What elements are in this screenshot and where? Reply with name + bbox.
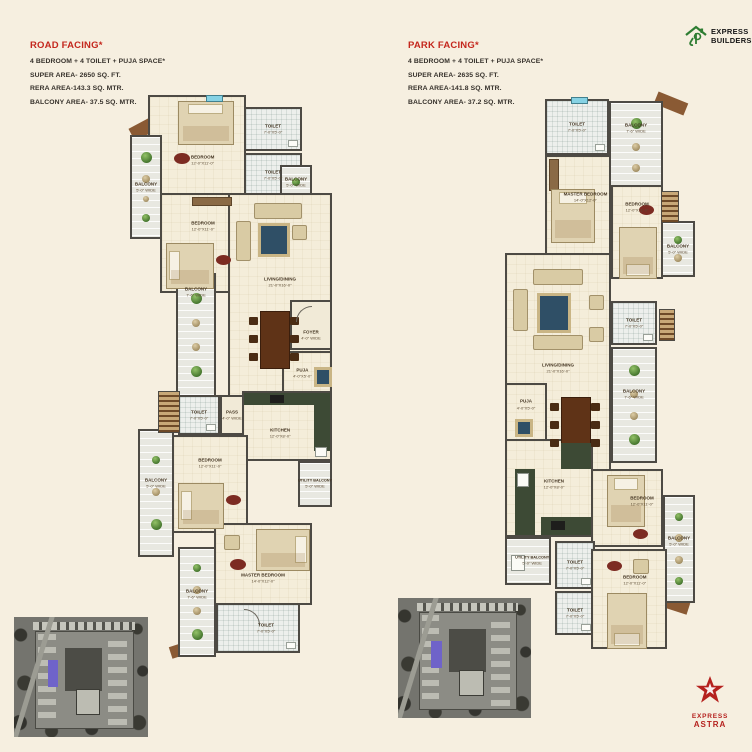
builders-logo-line1: EXPRESS — [711, 27, 752, 36]
washing-machine — [511, 555, 525, 571]
plant-icon — [151, 519, 162, 530]
plant-icon — [191, 293, 202, 304]
armchair — [589, 295, 604, 310]
plant-icon — [152, 456, 160, 464]
room-name: TOILET — [626, 317, 642, 323]
room-name: UTILITY BALCONY — [298, 479, 332, 484]
room-name: TOILET — [258, 622, 274, 628]
wardrobe — [192, 197, 232, 206]
planter-icon — [193, 607, 201, 615]
bedroom: BEDROOM12'-0"X11'-0" — [591, 469, 663, 547]
room-dims: 7'-0"X5'-0" — [566, 613, 585, 618]
chair — [290, 335, 299, 343]
center-table — [537, 293, 571, 333]
kitchen-counter — [561, 443, 591, 469]
bed — [607, 475, 645, 527]
planter-icon — [193, 586, 201, 594]
balcony: BALCONY7'-6" WIDE — [611, 347, 657, 463]
plant-icon — [675, 513, 683, 521]
room-dims: 7'-6" WIDE — [626, 129, 646, 134]
room-name: PUJA — [296, 367, 308, 373]
planter-icon — [143, 196, 149, 202]
room-dims: 7'-6" WIDE — [187, 594, 207, 599]
room-name: FOYER — [303, 329, 319, 335]
stove — [270, 395, 284, 403]
bed — [256, 529, 310, 571]
room-dims: 21'-0"X16'-0" — [268, 283, 291, 288]
site-clubhouse — [76, 689, 101, 715]
chair — [249, 335, 258, 343]
plant-icon — [141, 152, 152, 163]
chair — [290, 353, 299, 361]
room-dims: 7'-0"X5'-0" — [625, 323, 644, 328]
balcony: BALCONY7'-6" WIDE — [609, 101, 663, 189]
express-astra-logo: EXPRESS ASTRA — [681, 674, 739, 729]
park-facing-rera-area: RERA AREA-141.8 SQ. MTR. — [408, 85, 638, 92]
site-courtyard — [65, 648, 103, 691]
balcony: BALCONY5'-0" WIDE — [661, 221, 695, 277]
room-name: BALCONY — [667, 243, 689, 249]
planter-icon — [152, 488, 160, 496]
center-table — [258, 223, 290, 257]
kitchen-counter — [314, 405, 330, 451]
room-dims: 12'-0"X11'-0" — [192, 226, 215, 231]
planter-icon — [630, 412, 638, 420]
road-facing-config: 4 BEDROOM + 4 TOILET + PUJA SPACE* — [30, 58, 260, 65]
room-dims: 7'-0"X5'-0" — [566, 565, 585, 570]
plant-icon — [191, 366, 202, 377]
room-name: BEDROOM — [191, 220, 215, 226]
planter-icon — [632, 143, 640, 151]
bedroom: BEDROOM12'-0"X11'-0" — [148, 95, 246, 195]
plant-icon — [629, 434, 640, 445]
planter-icon — [142, 175, 150, 183]
refrigerator — [315, 447, 327, 457]
balcony: BALCONY7'-6" WIDE — [178, 547, 216, 657]
room-name: BEDROOM — [198, 458, 222, 464]
plant-icon — [629, 365, 640, 376]
toilet: TOILET7'-0"X5'-0" — [216, 603, 300, 653]
room-name: TOILET — [567, 607, 583, 613]
lift-shaft — [571, 97, 588, 104]
room-dims: 12'-0"X11'-0" — [191, 161, 214, 166]
room-name: BALCONY — [145, 477, 167, 483]
room-name: TOILET — [265, 123, 281, 129]
tower-location-highlight — [431, 641, 442, 667]
chair — [550, 403, 559, 411]
plant-icon — [192, 629, 203, 640]
sofa — [513, 289, 528, 331]
armchair — [589, 327, 604, 342]
room-name: PUJA — [520, 399, 532, 405]
room-name: KITCHEN — [544, 479, 564, 485]
site-aerial-image — [14, 617, 148, 737]
balcony: BALCONY7'-6" WIDE — [176, 273, 216, 397]
room-dims: 7'-0"X5'-0" — [190, 415, 209, 420]
site-courtyard — [449, 629, 486, 672]
rug — [226, 495, 241, 505]
park-facing-floorplan: TOILET7'-0"X5'-0" BALCONY7'-6" WIDE MAST… — [505, 97, 695, 653]
site-towers-right — [108, 634, 127, 725]
room-dims: 4'-0"X5'-0" — [293, 373, 312, 378]
plant-icon — [193, 564, 201, 572]
rug — [607, 561, 622, 571]
plant-icon — [631, 118, 642, 129]
door-arc — [296, 306, 312, 322]
bed — [619, 227, 657, 279]
armchair — [292, 225, 307, 240]
master-bedroom: MASTER BEDROOM14'-0"X12'-0" — [545, 155, 611, 255]
park-facing-super-area: SUPER AREA- 2635 SQ. FT. — [408, 72, 638, 79]
room-dims: 12'-0"X8'-0" — [544, 485, 565, 490]
road-facing-floorplan: BEDROOM12'-0"X11'-0" TOILET7'-0"X5'-0" T… — [130, 95, 332, 657]
room-dims: 12'-0"X11'-0" — [623, 580, 646, 585]
armchair — [224, 535, 240, 550]
room-name: BEDROOM — [191, 155, 215, 161]
plant-icon — [674, 236, 682, 244]
utility-balcony: UTILITY BALCONY5'-0" WIDE — [505, 537, 551, 585]
planter-icon — [675, 556, 683, 564]
passage: PASS4'-0" WIDE — [220, 395, 244, 435]
stairs — [659, 309, 675, 341]
puja-room: PUJA4'-0"X5'-0" — [505, 383, 547, 441]
rug — [174, 153, 190, 164]
sofa — [254, 203, 302, 219]
armchair — [633, 559, 649, 574]
bed — [178, 101, 234, 145]
plant-icon — [675, 577, 683, 585]
builders-logo-text: EXPRESS BUILDERS — [711, 27, 752, 46]
toilet: TOILET7'-0"X5'-0" — [611, 301, 657, 345]
express-builders-logo: EXPRESS BUILDERS — [684, 24, 752, 48]
kitchen: KITCHEN12'-0"X8'-0" — [505, 439, 593, 537]
sofa — [236, 221, 251, 261]
star-icon — [695, 674, 725, 706]
road-facing-super-area: SUPER AREA- 2650 SQ. FT. — [30, 72, 260, 79]
chair — [249, 353, 258, 361]
room-dims: 4'-0" WIDE — [301, 335, 321, 340]
brochure-page: ROAD FACING* 4 BEDROOM + 4 TOILET + PUJA… — [0, 0, 752, 752]
planter-icon — [632, 164, 640, 172]
room-dims: 4'-0" WIDE — [222, 415, 242, 420]
room-dims: 7'-0"X5'-0" — [257, 628, 276, 633]
plant-icon — [142, 214, 150, 222]
balcony: BALCONY5'-0" WIDE — [138, 429, 174, 557]
house-hand-icon — [684, 24, 708, 48]
toilet: TOILET7'-0"X5'-0" — [555, 591, 595, 635]
room-name: TOILET — [265, 169, 281, 175]
rug — [639, 205, 654, 215]
room-dims: 7'-0"X5'-0" — [264, 129, 283, 134]
planter-icon — [675, 534, 683, 542]
site-aerial-image — [398, 598, 531, 718]
room-name: TOILET — [567, 559, 583, 565]
room-name: TOILET — [191, 409, 207, 415]
plant-icon — [292, 178, 300, 186]
room-dims: 4'-0"X5'-0" — [517, 405, 536, 410]
room-name: MASTER BEDROOM — [241, 572, 285, 578]
wardrobe — [549, 159, 559, 191]
chair — [591, 439, 600, 447]
bedroom: BEDROOM12'-0"X11'-0" — [591, 549, 667, 649]
kitchen: KITCHEN12'-0"X8'-0" — [242, 391, 332, 461]
kitchen-counter — [244, 393, 330, 405]
planter-icon — [630, 390, 638, 398]
planter-icon — [192, 319, 200, 327]
bed — [551, 189, 595, 243]
kitchen-counter — [541, 517, 591, 535]
utility-balcony: UTILITY BALCONY5'-0" WIDE — [298, 461, 332, 507]
room-dims: 12'-0"X11'-0" — [199, 464, 222, 469]
stove — [551, 521, 565, 530]
toilet: TOILET7'-0"X5'-0" — [178, 395, 220, 435]
chair — [249, 317, 258, 325]
room-name: LIVING/DINING — [264, 277, 296, 283]
stairs — [661, 191, 679, 223]
room-dims: 5'-0" WIDE — [305, 484, 325, 489]
stairs — [158, 391, 180, 433]
chair — [550, 421, 559, 429]
bed — [607, 593, 647, 649]
road-facing-rera-area: RERA AREA-143.3 SQ. MTR. — [30, 85, 260, 92]
room-name: BEDROOM — [623, 574, 647, 580]
rug — [216, 255, 231, 265]
room-dims: 5'-0" WIDE — [136, 187, 156, 192]
rug — [633, 529, 648, 539]
toilet: TOILET7'-0"X5'-0" — [545, 99, 609, 155]
rug — [230, 559, 246, 570]
room-name: KITCHEN — [270, 427, 290, 433]
astra-logo-line2: ASTRA — [681, 720, 739, 729]
room-name: TOILET — [569, 121, 585, 127]
sofa — [533, 335, 583, 350]
site-clubhouse — [459, 670, 484, 696]
balcony: BALCONY5'-0" WIDE — [130, 135, 162, 239]
park-facing-config: 4 BEDROOM + 4 TOILET + PUJA SPACE* — [408, 58, 638, 65]
tower-location-highlight — [48, 660, 59, 686]
chair — [591, 421, 600, 429]
room-dims: 14'-0"X12'-0" — [251, 578, 274, 583]
refrigerator — [517, 473, 529, 487]
builders-logo-line2: BUILDERS — [711, 36, 752, 45]
planter-icon — [192, 343, 200, 351]
door-arc — [244, 609, 260, 625]
room-name: PASS — [226, 409, 238, 415]
room-name: LIVING/DINING — [542, 362, 574, 368]
bedroom: BEDROOM12'-0"X11'-0" — [172, 435, 248, 533]
room-dims: 5'-0" WIDE — [522, 561, 542, 566]
room-dims: 21'-0"X16'-0" — [546, 368, 569, 373]
puja-mat — [314, 367, 332, 387]
bedroom: BEDROOM12'-0"X11'-0" — [611, 185, 663, 279]
planter-icon — [674, 254, 682, 262]
balcony: BALCONY5'-0" WIDE — [663, 495, 695, 603]
dining-table — [260, 311, 290, 369]
park-facing-title: PARK FACING* — [408, 40, 638, 51]
room-dims: 7'-0"X5'-0" — [568, 127, 587, 132]
sofa — [533, 269, 583, 285]
puja-mat — [515, 419, 533, 437]
bed — [166, 243, 214, 289]
room-dims: 12'-0"X8'-0" — [270, 433, 291, 438]
road-facing-title: ROAD FACING* — [30, 40, 260, 51]
astra-logo-line1: EXPRESS — [681, 713, 739, 720]
master-bedroom: MASTER BEDROOM14'-0"X12'-0" — [214, 523, 312, 605]
lift-shaft — [206, 95, 223, 102]
toilet: TOILET7'-0"X5'-0" — [244, 107, 302, 151]
chair — [550, 439, 559, 447]
bed — [178, 483, 224, 529]
site-towers-right — [491, 615, 510, 706]
chair — [591, 403, 600, 411]
toilet: TOILET7'-0"X5'-0" — [555, 541, 595, 589]
